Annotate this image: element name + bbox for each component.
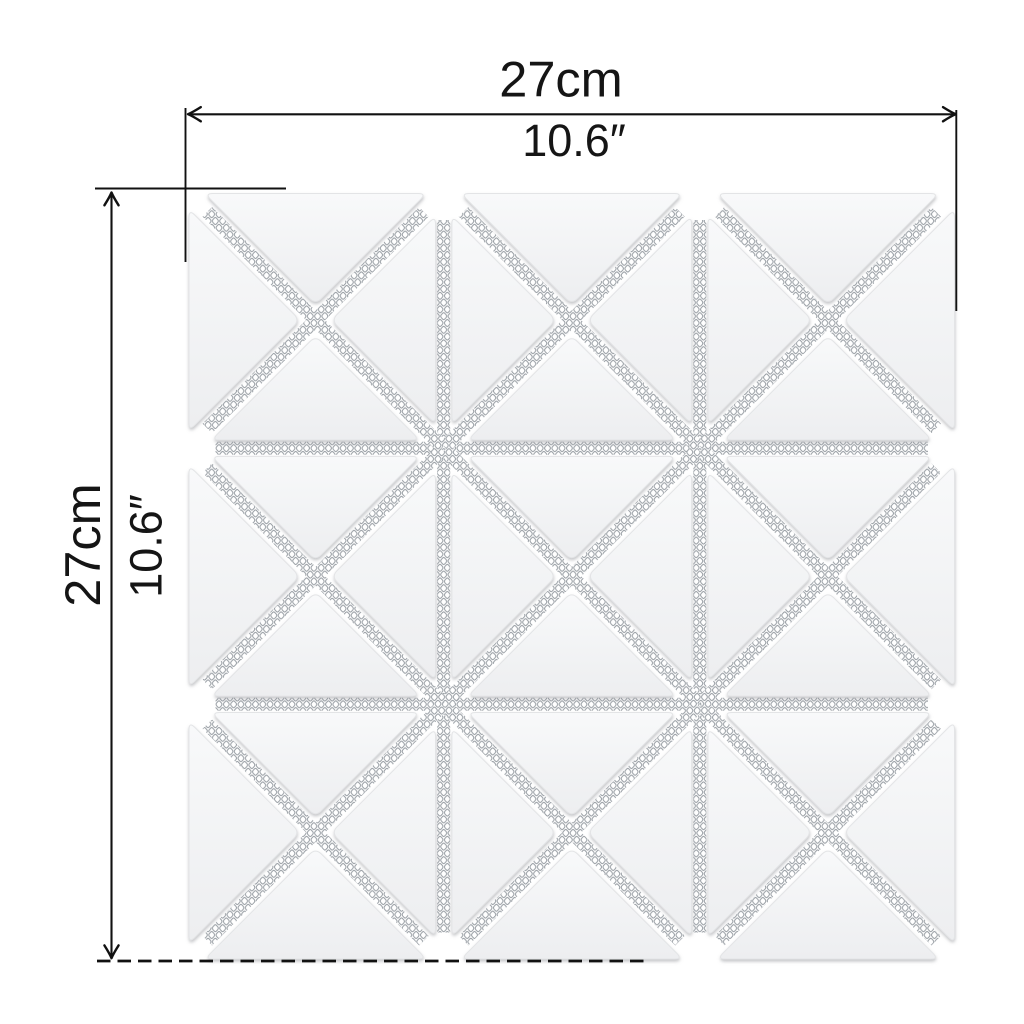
svg-text:27cm: 27cm <box>54 483 111 607</box>
svg-text:27cm: 27cm <box>499 51 623 108</box>
svg-text:10.6″: 10.6″ <box>522 115 626 166</box>
svg-text:10.6″: 10.6″ <box>121 494 172 598</box>
